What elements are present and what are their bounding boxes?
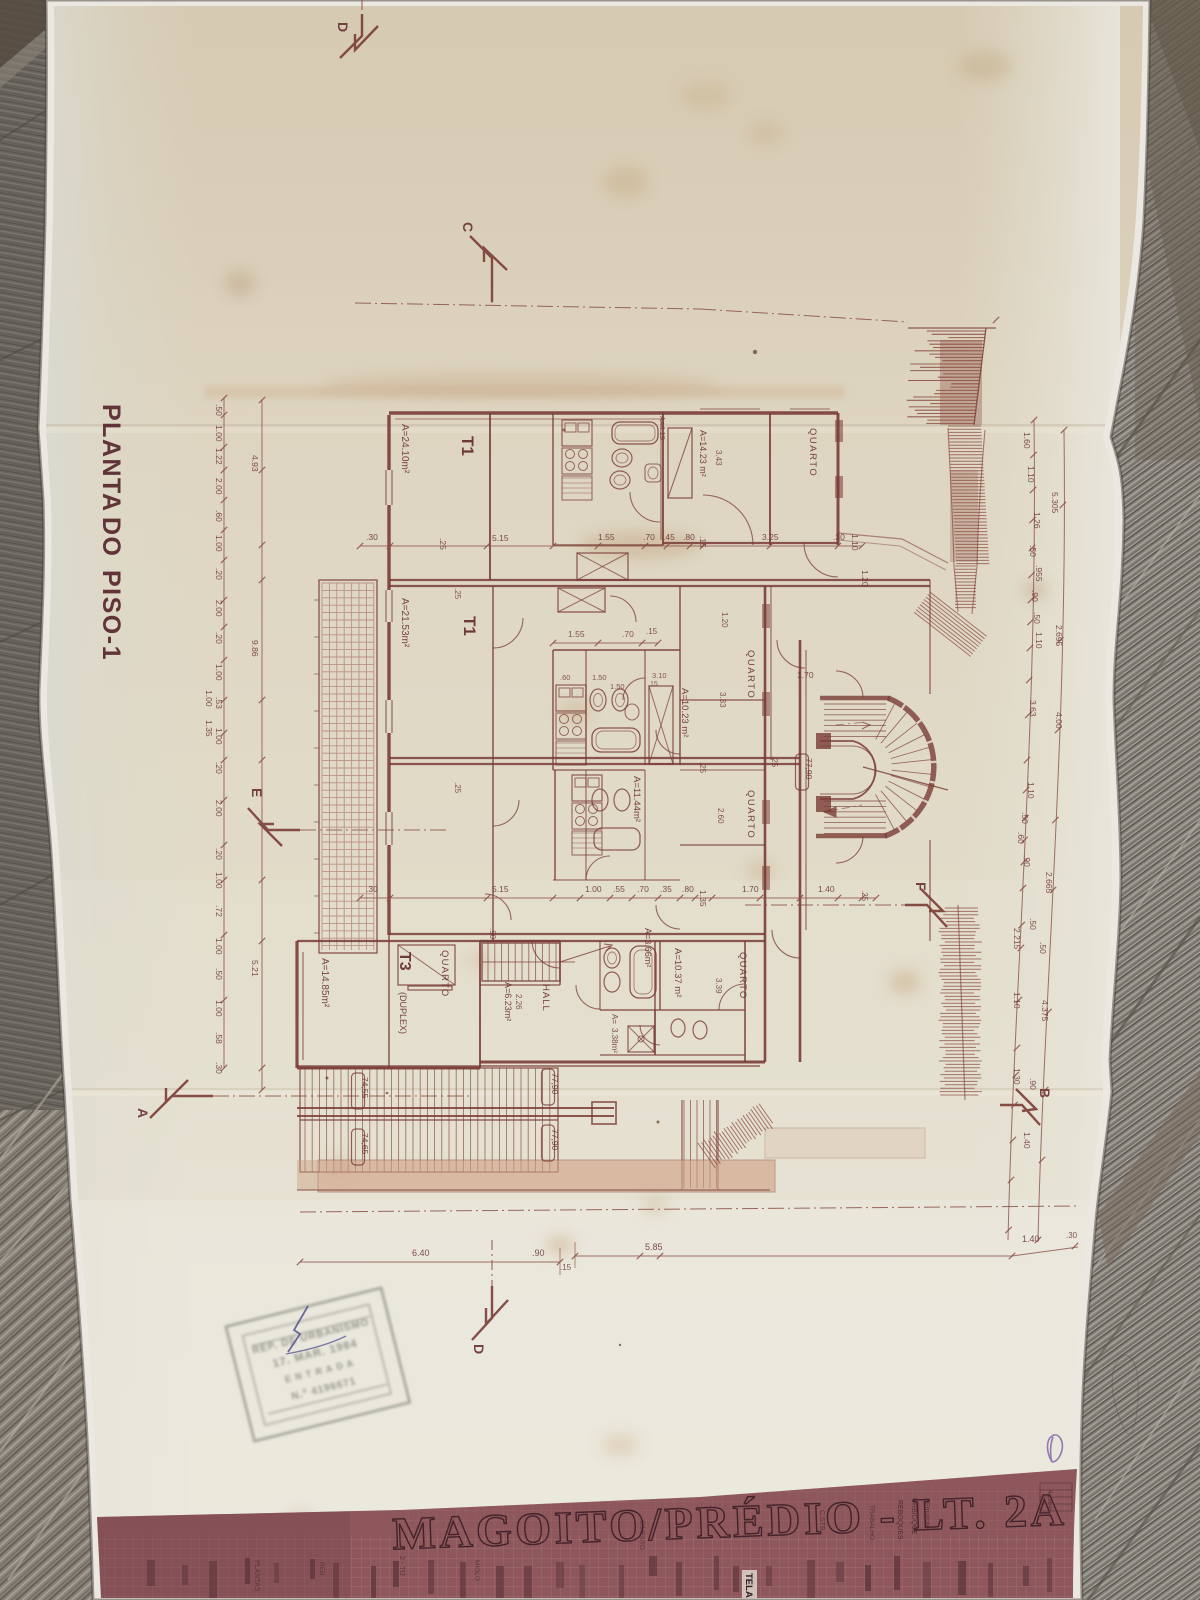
svg-text:2.665: 2.665	[1044, 872, 1054, 894]
svg-text:.20: .20	[214, 762, 224, 774]
svg-text:A=: A=	[610, 1014, 619, 1024]
svg-text:A=10.37 m²: A=10.37 m²	[672, 948, 683, 997]
svg-text:3.39: 3.39	[714, 978, 723, 994]
svg-text:A=21.53m²: A=21.53m²	[399, 598, 410, 648]
svg-text:A=24.10m²: A=24.10m²	[399, 424, 410, 474]
svg-text:77,90: 77,90	[550, 1073, 560, 1095]
svg-text:(DUPLEX): (DUPLEX)	[398, 992, 408, 1034]
svg-text:.15: .15	[698, 536, 708, 548]
svg-text:TELAS: TELAS	[743, 1573, 754, 1600]
svg-text:QUARTO: QUARTO	[439, 950, 450, 998]
svg-text:.80: .80	[682, 884, 694, 894]
svg-text:A=11.44m²: A=11.44m²	[631, 776, 642, 822]
svg-text:.90: .90	[488, 928, 497, 940]
svg-text:2.60: 2.60	[716, 808, 725, 824]
svg-text:.80: .80	[683, 532, 695, 542]
svg-text:.20: .20	[214, 632, 224, 644]
svg-text:.35: .35	[660, 884, 672, 894]
svg-text:1.50: 1.50	[610, 682, 625, 691]
svg-text:T1: T1	[460, 616, 479, 636]
svg-text:2.00: 2.00	[214, 478, 224, 495]
svg-text:1.00: 1.00	[214, 425, 224, 442]
svg-text:4.19648: 4.19648	[1046, 1490, 1052, 1512]
svg-text:A=3.66m²: A=3.66m²	[643, 928, 653, 967]
svg-text:.25: .25	[770, 756, 779, 768]
svg-text:T3: T3	[396, 952, 413, 971]
svg-text:9.86: 9.86	[250, 640, 260, 657]
svg-text:DO: DO	[97, 517, 125, 558]
svg-text:1.40: 1.40	[1022, 1132, 1032, 1149]
svg-text:3.33: 3.33	[718, 692, 727, 708]
svg-text:.53: .53	[214, 697, 224, 709]
svg-text:1.00: 1.00	[204, 690, 214, 707]
svg-text:.58: .58	[214, 1032, 224, 1044]
svg-text:MIOLO: MIOLO	[473, 1560, 480, 1581]
svg-text:.90: .90	[1030, 590, 1040, 602]
svg-text:1.55: 1.55	[598, 532, 615, 542]
svg-text:3.10: 3.10	[652, 671, 667, 680]
svg-text:1.40: 1.40	[818, 884, 835, 894]
svg-text:1.10: 1.10	[850, 534, 860, 551]
svg-text:.50: .50	[214, 404, 224, 416]
svg-text:PLANTAS: PLANTAS	[253, 1560, 260, 1592]
svg-text:1.00: 1.00	[214, 664, 224, 681]
svg-text:A=14.23 m²: A=14.23 m²	[698, 430, 708, 477]
svg-text:REB: REB	[318, 1562, 325, 1575]
svg-text:.25: .25	[453, 782, 462, 794]
svg-text:QUARTO: QUARTO	[737, 952, 748, 1000]
svg-text:.60: .60	[1016, 832, 1026, 844]
svg-text:2.26: 2.26	[514, 994, 523, 1010]
svg-text:1.10: 1.10	[1012, 992, 1022, 1009]
svg-text:2.00: 2.00	[214, 600, 224, 617]
svg-text:.72: .72	[214, 905, 224, 917]
svg-text:.20: .20	[214, 568, 224, 580]
svg-text:.55: .55	[613, 884, 625, 894]
svg-text:.30: .30	[1066, 1231, 1078, 1240]
svg-text:74,65: 74,65	[360, 1133, 370, 1155]
svg-text:QUARTO: QUARTO	[807, 428, 818, 477]
svg-text:3.38m²: 3.38m²	[610, 1028, 619, 1053]
svg-text:.25: .25	[698, 762, 707, 774]
svg-text:2.00: 2.00	[214, 800, 224, 817]
svg-text:1.70: 1.70	[742, 884, 759, 894]
svg-text:1.55: 1.55	[568, 629, 585, 639]
svg-text:.20: .20	[214, 848, 224, 860]
svg-text:CIMENTO: CIMENTO	[638, 1520, 645, 1550]
svg-text:.30: .30	[366, 532, 378, 542]
svg-text:2.215: 2.215	[1012, 928, 1022, 950]
svg-text:.15: .15	[560, 1263, 572, 1272]
svg-text:1.60: 1.60	[1022, 432, 1032, 449]
svg-text:C: C	[460, 222, 476, 232]
svg-text:1.10: 1.10	[1026, 466, 1036, 483]
svg-text:1.10: 1.10	[1026, 782, 1036, 799]
svg-text:1.22: 1.22	[214, 448, 224, 465]
svg-text:1.10: 1.10	[1034, 632, 1044, 649]
svg-text:.15: .15	[648, 681, 658, 688]
svg-text:1.30: 1.30	[1012, 1068, 1022, 1085]
svg-text:1.26: 1.26	[1032, 512, 1042, 529]
svg-text:Emulsite: Emulsite	[923, 1502, 930, 1529]
svg-text:1.35: 1.35	[204, 720, 214, 737]
svg-text:5.15: 5.15	[492, 533, 509, 543]
svg-text:QUARTO: QUARTO	[745, 790, 756, 839]
svg-text:D: D	[471, 1344, 487, 1354]
svg-text:74,55: 74,55	[360, 1077, 370, 1099]
svg-text:1.40: 1.40	[1022, 1234, 1040, 1244]
svg-text:.15: .15	[646, 627, 658, 636]
svg-text:1.50: 1.50	[592, 673, 607, 682]
svg-text:.30: .30	[214, 1062, 224, 1074]
svg-text:.25: .25	[438, 538, 448, 550]
svg-text:1.00: 1.00	[585, 884, 602, 894]
svg-text:.50: .50	[1038, 942, 1048, 954]
svg-text:A=6.23m²: A=6.23m²	[503, 982, 513, 1021]
svg-text:PLANTA: PLANTA	[97, 404, 125, 513]
svg-text:URBIDQUE: URBIDQUE	[910, 1498, 917, 1535]
svg-text:3.63: 3.63	[1028, 700, 1038, 717]
svg-text:.60: .60	[214, 510, 224, 522]
svg-text:77,90: 77,90	[804, 758, 814, 780]
svg-text:.30: .30	[366, 884, 378, 894]
svg-text:2 - TIJ: 2 - TIJ	[398, 1556, 405, 1576]
svg-text:TRABALHO: TRABALHO	[868, 1505, 875, 1540]
svg-text:.70: .70	[637, 884, 649, 894]
svg-text:.90: .90	[1022, 855, 1032, 867]
svg-text:1.00: 1.00	[214, 938, 224, 955]
svg-text:.50: .50	[1032, 612, 1042, 624]
svg-text:PISO-1: PISO-1	[97, 570, 125, 661]
svg-text:A=10.23 m²: A=10.23 m²	[679, 688, 690, 737]
svg-text:A: A	[135, 1108, 151, 1118]
svg-text:D: D	[335, 22, 351, 32]
svg-text:77,90: 77,90	[550, 1129, 560, 1151]
svg-text:.45: .45	[663, 532, 675, 542]
svg-text:.70: .70	[643, 532, 655, 542]
svg-text:1.70: 1.70	[797, 670, 814, 680]
svg-text:.50: .50	[214, 968, 224, 980]
svg-text:.70: .70	[622, 629, 634, 639]
svg-text:.25: .25	[453, 588, 462, 600]
svg-text:.25: .25	[860, 890, 869, 902]
svg-text:.50: .50	[1028, 918, 1038, 930]
svg-text:A=14.85m²: A=14.85m²	[319, 958, 330, 1008]
svg-text:1.00: 1.00	[214, 535, 224, 552]
svg-text:5.21: 5.21	[250, 960, 260, 977]
svg-text:C.STB: C.STB	[818, 1510, 825, 1531]
svg-text:3.43: 3.43	[714, 450, 723, 466]
svg-text:T1: T1	[458, 436, 477, 456]
svg-text:1.20: 1.20	[860, 570, 870, 587]
svg-text:1.35: 1.35	[698, 890, 708, 907]
svg-text:5.15: 5.15	[492, 884, 509, 894]
svg-text:1.00: 1.00	[214, 1000, 224, 1017]
svg-text:1.20: 1.20	[720, 612, 729, 628]
svg-text:F: F	[913, 882, 929, 891]
svg-text:.955: .955	[1034, 565, 1044, 582]
svg-text:HALL: HALL	[540, 984, 551, 1012]
svg-text:1.00: 1.00	[214, 728, 224, 745]
svg-text:.30: .30	[833, 532, 845, 542]
svg-text:2.695: 2.695	[1054, 625, 1064, 647]
svg-text:4.00: 4.00	[1054, 712, 1064, 729]
svg-text:4.93: 4.93	[250, 455, 260, 472]
svg-text:4.375: 4.375	[1040, 1000, 1050, 1022]
svg-text:6.40: 6.40	[412, 1248, 430, 1258]
svg-text:A=4.19: A=4.19	[658, 416, 667, 440]
svg-text:3.25: 3.25	[762, 532, 779, 542]
svg-text:5.85: 5.85	[645, 1242, 663, 1252]
svg-text:.50: .50	[1020, 812, 1030, 824]
svg-text:QUARTO: QUARTO	[745, 650, 756, 699]
svg-text:E: E	[249, 788, 265, 797]
svg-text:REBOQUES: REBOQUES	[896, 1500, 903, 1540]
svg-text:5.305: 5.305	[1050, 492, 1060, 514]
svg-text:.90: .90	[532, 1248, 545, 1258]
svg-text:.60: .60	[560, 673, 570, 682]
svg-text:.50: .50	[1028, 545, 1038, 557]
svg-text:.90: .90	[1028, 1078, 1038, 1090]
svg-text:1.00: 1.00	[214, 872, 224, 889]
